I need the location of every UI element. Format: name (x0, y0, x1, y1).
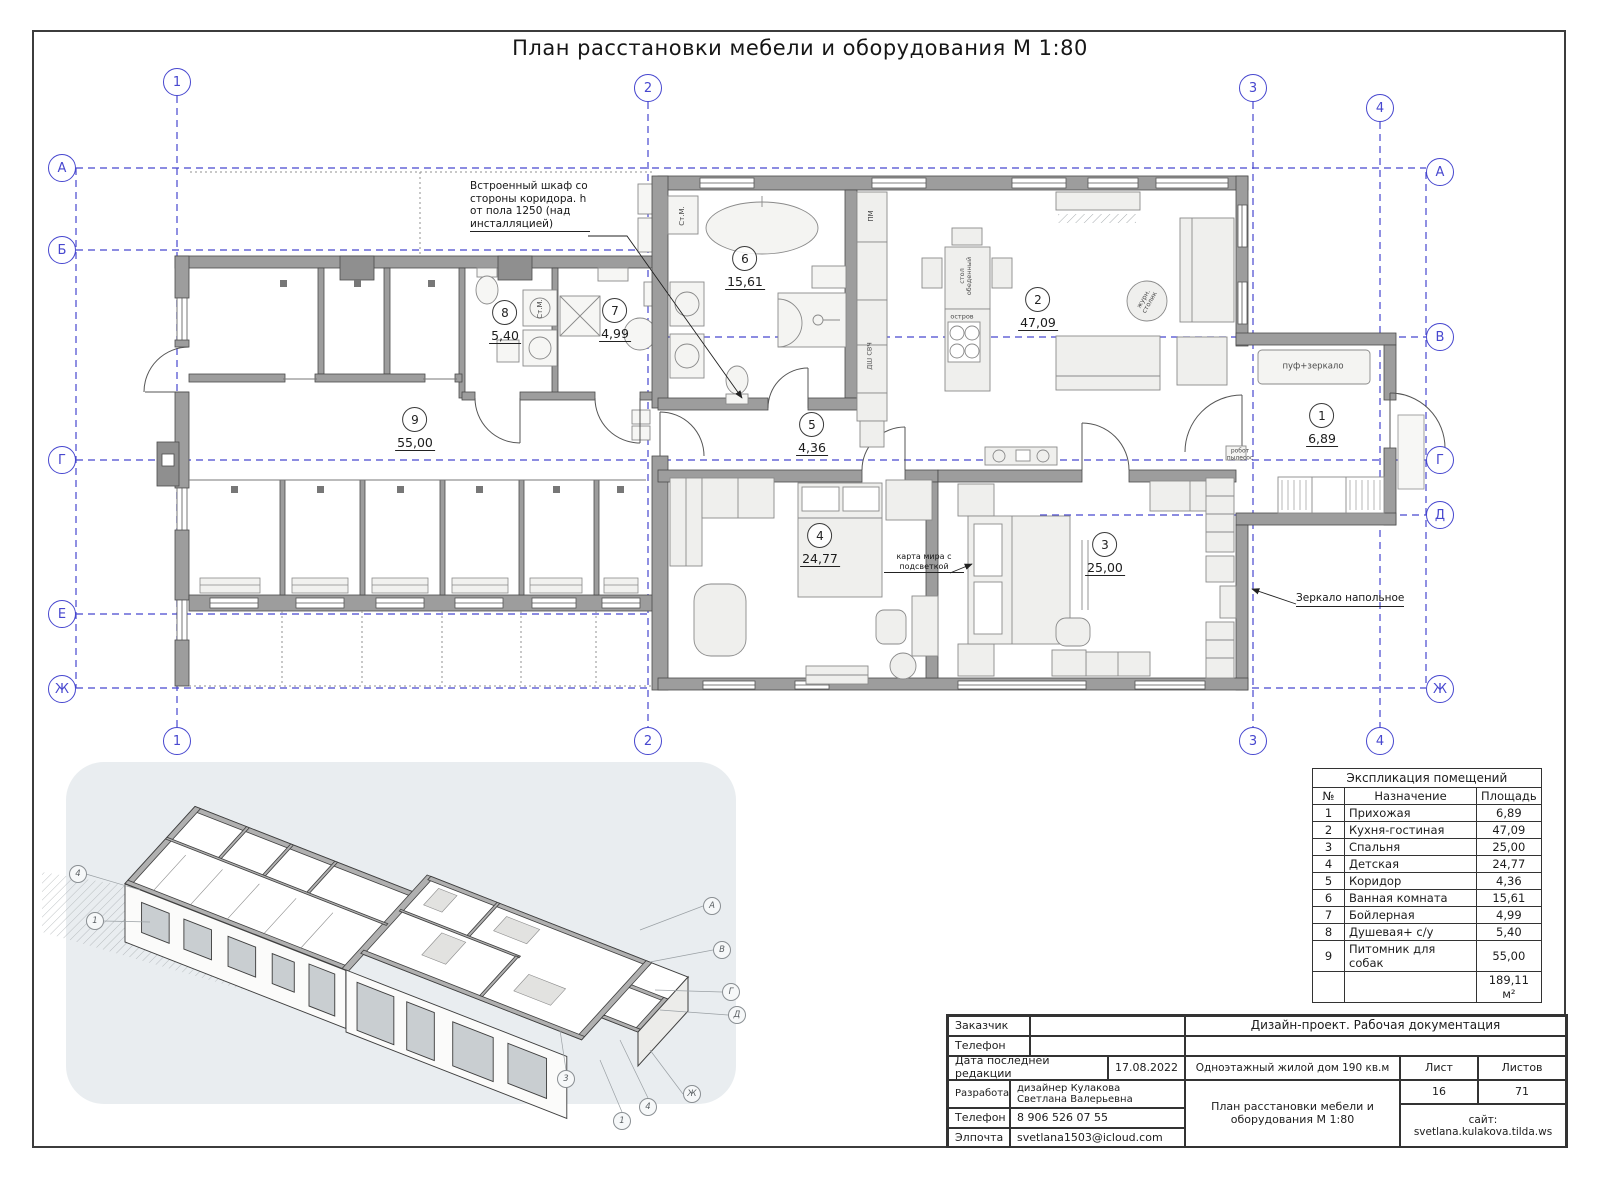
axis-label: 1 (163, 68, 191, 96)
table-cell: 4,36 (1477, 873, 1542, 890)
axis-label: Д (1426, 501, 1454, 529)
table-cell: Спальня (1345, 839, 1477, 856)
doc-type: Дизайн-проект. Рабочая документация (1185, 1016, 1566, 1036)
table-cell: 9 (1313, 941, 1345, 972)
table-cell: Прихожая (1345, 805, 1477, 822)
table-total-row: 189,11 м² (1313, 972, 1542, 1003)
explication-title: Экспликация помещений (1313, 769, 1542, 788)
axis-label: 1 (163, 727, 191, 755)
annotation-builtin-wardrobe: Встроенный шкаф со стороны коридора. h о… (470, 180, 590, 232)
table-cell: Душевая+ с/у (1345, 924, 1477, 941)
axon-axis-marker: Г (722, 983, 740, 1001)
room-area-value: 15,61 (725, 275, 765, 290)
axon-axis-marker: Ж (683, 1085, 701, 1103)
total-area: 189,11 м² (1477, 972, 1542, 1003)
table-cell: Кухня-гостиная (1345, 822, 1477, 839)
table-row: 8Душевая+ с/у5,40 (1313, 924, 1542, 941)
axis-label: А (1426, 158, 1454, 186)
date-label: Дата последней редакции (948, 1056, 1108, 1080)
doc-type-empty-row (1185, 1036, 1566, 1056)
annotation-world-map: карта мира с подсветкой (884, 552, 964, 573)
room-number-badge: 6 (732, 246, 757, 271)
axis-label: А (48, 154, 76, 182)
room-label: 247,09 (1018, 287, 1058, 331)
table-cell: 8 (1313, 924, 1345, 941)
room-label: 16,89 (1306, 403, 1338, 447)
table-cell (1313, 972, 1345, 1003)
room-label: 74,99 (599, 298, 631, 342)
table-cell: 47,09 (1477, 822, 1542, 839)
date-value: 17.08.2022 (1108, 1056, 1185, 1080)
table-cell: 6 (1313, 890, 1345, 907)
washing-machine-label: Ст.М. (537, 299, 545, 318)
table-cell: 2 (1313, 822, 1345, 839)
customer-label: Заказчик (948, 1016, 1030, 1036)
object-name: Одноэтажный жилой дом 190 кв.м (1185, 1056, 1400, 1080)
axis-label: 2 (634, 727, 662, 755)
axon-axis-marker: 3 (557, 1070, 575, 1088)
axis-label: В (1426, 323, 1454, 351)
room-label: 85,40 (489, 300, 521, 344)
table-cell: 24,77 (1477, 856, 1542, 873)
room-area-value: 5,40 (489, 329, 521, 344)
table-cell: 7 (1313, 907, 1345, 924)
table-cell: Питомник для собак (1345, 941, 1477, 972)
table-row: 9Питомник для собак55,00 (1313, 941, 1542, 972)
dining-table-label: стол обеденный (959, 257, 973, 295)
room-number-badge: 3 (1092, 532, 1117, 557)
customer-value (1030, 1016, 1185, 1036)
table-cell: 25,00 (1477, 839, 1542, 856)
axis-label: 3 (1239, 74, 1267, 102)
room-number-badge: 9 (402, 407, 427, 432)
room-number-badge: 8 (493, 300, 518, 325)
table-cell: Детская (1345, 856, 1477, 873)
email-label: Элпочта (948, 1128, 1010, 1148)
kitchen-island-label: остров (950, 313, 973, 320)
room-label: 325,00 (1085, 532, 1125, 576)
axis-label: Ж (48, 675, 76, 703)
table-cell: Бойлерная (1345, 907, 1477, 924)
pouf-mirror-label: пуф+зеркало (1282, 362, 1343, 371)
room-number-badge: 7 (603, 298, 628, 323)
col-number: № (1313, 788, 1345, 805)
room-area-value: 47,09 (1018, 316, 1058, 331)
dishwasher-label: ПМ (868, 210, 876, 221)
table-cell: Ванная комната (1345, 890, 1477, 907)
table-cell: 4 (1313, 856, 1345, 873)
axon-axis-marker: 4 (69, 865, 87, 883)
table-cell: 55,00 (1477, 941, 1542, 972)
sheet-label: Лист (1400, 1056, 1478, 1080)
room-area-value: 55,00 (395, 436, 435, 451)
robot-vacuum-label: робот пылесос (1227, 448, 1253, 461)
room-area-value: 4,36 (796, 441, 828, 456)
axon-axis-marker: В (713, 941, 731, 959)
axis-label: 3 (1239, 727, 1267, 755)
table-cell: 5,40 (1477, 924, 1542, 941)
room-number-badge: 4 (807, 523, 832, 548)
table-cell: 1 (1313, 805, 1345, 822)
sheets-label: Листов (1478, 1056, 1566, 1080)
washing-machine-label: Ст.М. (679, 206, 687, 225)
room-number-badge: 5 (800, 412, 825, 437)
axis-label: Г (48, 446, 76, 474)
site-url: сайт: svetlana.kulakova.tilda.ws (1400, 1104, 1566, 1148)
room-label: 615,61 (725, 246, 765, 290)
table-row: 3Спальня25,00 (1313, 839, 1542, 856)
phone1-label: Телефон (948, 1036, 1030, 1056)
room-area-value: 25,00 (1085, 561, 1125, 576)
phone2-value: 8 906 526 07 55 (1010, 1108, 1185, 1128)
drawing-sheet: План расстановки мебели и оборудования М… (0, 0, 1600, 1178)
table-row: 5Коридор4,36 (1313, 873, 1542, 890)
table-cell: 6,89 (1477, 805, 1542, 822)
room-label: 955,00 (395, 407, 435, 451)
room-number-badge: 1 (1310, 403, 1335, 428)
room-area-value: 24,77 (800, 552, 840, 567)
table-row: 7Бойлерная4,99 (1313, 907, 1542, 924)
table-cell: 3 (1313, 839, 1345, 856)
axis-label: 2 (634, 74, 662, 102)
phone1-value (1030, 1036, 1185, 1056)
developer-value: дизайнер Кулакова Светлана Валерьевна (1010, 1080, 1185, 1108)
axis-label: 4 (1366, 94, 1394, 122)
sheet-value: 16 (1400, 1080, 1478, 1104)
table-cell: 15,61 (1477, 890, 1542, 907)
axon-axis-marker: А (703, 897, 721, 915)
axis-label: Г (1426, 446, 1454, 474)
sheets-value: 71 (1478, 1080, 1566, 1104)
axis-label: Ж (1426, 675, 1454, 703)
table-row: 4Детская24,77 (1313, 856, 1542, 873)
room-explication-table: Экспликация помещений № Назначение Площа… (1312, 768, 1542, 1003)
col-area: Площадь (1477, 788, 1542, 805)
room-area-value: 6,89 (1306, 432, 1338, 447)
table-cell: 4,99 (1477, 907, 1542, 924)
room-label: 54,36 (796, 412, 828, 456)
annotation-floor-mirror: Зеркало напольное (1296, 592, 1404, 607)
table-cell: 5 (1313, 873, 1345, 890)
table-cell: Коридор (1345, 873, 1477, 890)
axon-axis-marker: 1 (613, 1112, 631, 1130)
email-value: svetlana1503@icloud.com (1010, 1128, 1185, 1148)
axon-axis-marker: Д (728, 1006, 746, 1024)
axon-axis-marker: 4 (639, 1098, 657, 1116)
room-area-value: 4,99 (599, 327, 631, 342)
col-purpose: Назначение (1345, 788, 1477, 805)
axis-label: Б (48, 236, 76, 264)
room-number-badge: 2 (1025, 287, 1050, 312)
table-row: 1Прихожая6,89 (1313, 805, 1542, 822)
table-row: 2Кухня-гостиная47,09 (1313, 822, 1542, 839)
table-cell (1345, 972, 1477, 1003)
axis-label: 4 (1366, 727, 1394, 755)
phone2-label: Телефон (948, 1108, 1010, 1128)
table-row: 6Ванная комната15,61 (1313, 890, 1542, 907)
developer-label: Разработал: (948, 1080, 1010, 1108)
axis-label: Е (48, 600, 76, 628)
room-label: 424,77 (800, 523, 840, 567)
axon-axis-marker: 1 (86, 912, 104, 930)
drawing-name: План расстановки мебели и оборудования М… (1185, 1080, 1400, 1148)
oven-microwave-label: ДШ СВЧ (866, 342, 873, 370)
